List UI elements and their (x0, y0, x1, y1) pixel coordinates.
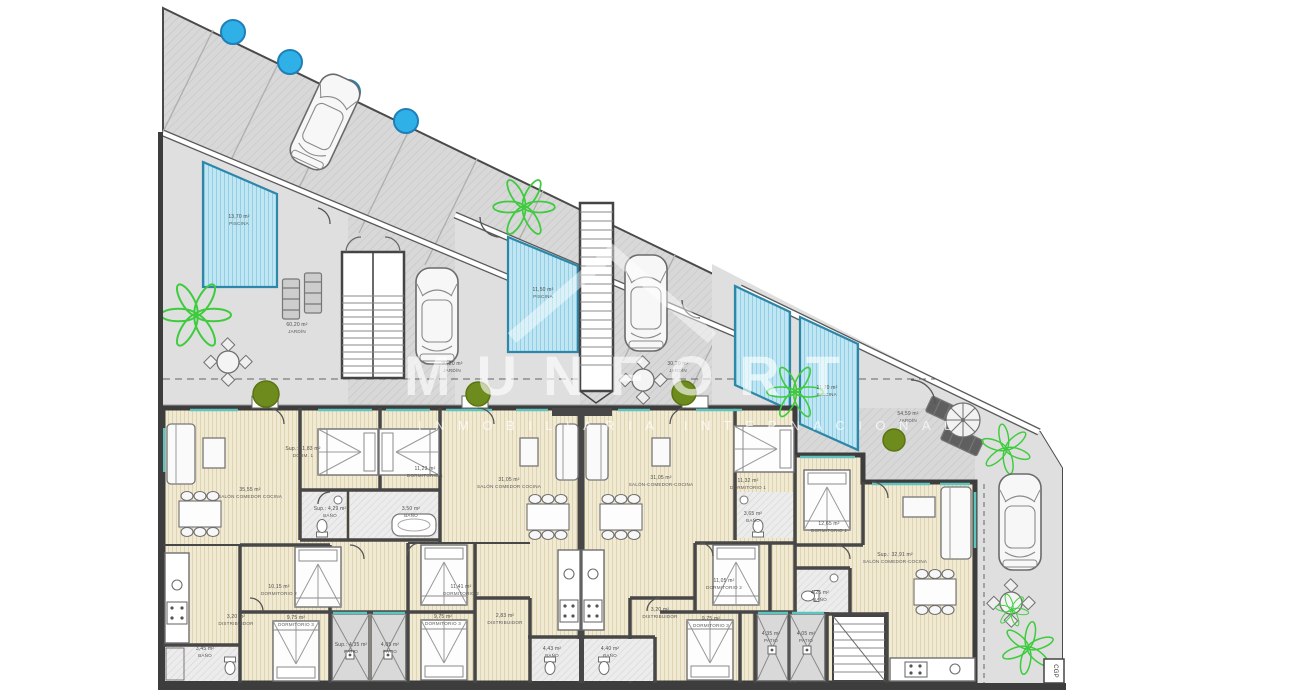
label-u2-dorm1: 11,23 m²DORMITORIO 1 (407, 466, 443, 478)
label-u2-bano1: 3,50 m²BAÑO (402, 506, 420, 518)
label-u2-dorm2: 11,41 m²DORMITORIO 2 (443, 584, 479, 596)
label-u1-patio1: Sup.: 4,35 m²PATIO (335, 642, 368, 654)
stairs-left (342, 237, 404, 378)
label-jardin-1: 60,20 m²JARDÍN (286, 322, 307, 334)
car-garden-right (999, 474, 1041, 570)
floor-plan-page: 13,70 m²PISCINA 60,20 m²JARDÍN 11,50 m²P… (0, 0, 1290, 698)
label-u1-bano1: Sup.: 4,29 m²BAÑO (314, 506, 347, 518)
coffee-table-unit4 (903, 497, 935, 517)
label-u1-distribuidor: 3,20 m²DISTRIBUIDOR (218, 614, 253, 626)
label-u2-bano2: 4,43 m²BAÑO (543, 646, 561, 658)
stairs-middle (580, 203, 613, 403)
label-u3-dorm3: 9,75 m²DORMITORIO 3 (693, 616, 729, 628)
label-u3-patio2: 4,05 m²PATIO (797, 631, 815, 643)
label-piscina-1: 13,70 m²PISCINA (228, 214, 249, 226)
sofa-unit2 (556, 424, 578, 480)
label-jardin-2: 30,20 m²JARDÍN (441, 361, 462, 373)
label-u3-patio1: 4,35 m²PATIO (762, 631, 780, 643)
label-u4-dorm1: 12,65 m²DORMITORIO 1 (811, 521, 847, 533)
label-u1-bano2: 3,45 m²BAÑO (196, 646, 214, 658)
coffee-table-unit1 (203, 438, 225, 468)
dining-table-unit1 (179, 492, 221, 537)
label-u3-bano1: 3,65 m²BAÑO (744, 511, 762, 523)
label-u1-dorm2: 10,15 m²DORMITORIO 2 (261, 584, 297, 596)
label-u3-dorm1: 11,32 m²DORMITORIO 1 (730, 478, 766, 490)
label-u1-salon: 35,55 m²SALÓN COMEDOR COCINA (218, 487, 282, 499)
label-u3-salon: 31,05 m²SALÓN-COMEDOR-COCINA (629, 475, 694, 487)
label-u3-distribuidor: 3,20 m²DISTRIBUIDOR (642, 607, 677, 619)
label-piscina-2: 11,50 m²PISCINA (533, 287, 554, 299)
dining-table-unit3 (600, 495, 642, 540)
label-cgp: CGP (1050, 664, 1058, 678)
stairs-unit4 (833, 616, 885, 681)
label-u3-bano2: 4,40 m²BAÑO (601, 646, 619, 658)
label-u1-dorm1: Sup.: 11,83 m²DORM. 1 (285, 446, 320, 458)
site-plan-drawing (0, 0, 1290, 698)
label-u4-bano: 4,25 m²BAÑO (811, 590, 829, 602)
sofa-unit3 (586, 424, 608, 480)
label-jardin-3: 30,20 m²JARDÍN (667, 361, 688, 373)
label-u1-dorm3: 9,75 m²DORMITORIO 3 (278, 615, 314, 627)
label-u2-salon: 31,05 m²SALÓN COMEDOR COCINA (477, 477, 541, 489)
label-u2-distribuidor: 2,83 m²DISTRIBUIDOR (487, 613, 522, 625)
dining-table-unit4 (914, 570, 956, 615)
dining-table-unit2 (527, 495, 569, 540)
label-u2-dorm3: 9,75 m²DORMITORIO 3 (425, 614, 461, 626)
sofa-unit1 (167, 424, 195, 484)
sofa-unit4 (941, 487, 971, 559)
label-piscina-3: 11,70 m²PISCINA (817, 385, 838, 397)
coffee-table-unit2 (520, 438, 538, 466)
label-u4-salon: Sup.: 32,91 m²SALÓN COMEDOR-COCINA (863, 552, 927, 564)
label-u3-dorm2: 11,05 m²DORMITORIO 2 (706, 578, 742, 590)
car-garden-left (416, 268, 458, 364)
coffee-table-unit3 (652, 438, 670, 466)
label-jardin-4: 54,59 m²JARDÍN (897, 411, 918, 423)
label-u1-patio2: 4,05 m²PATIO (381, 642, 399, 654)
